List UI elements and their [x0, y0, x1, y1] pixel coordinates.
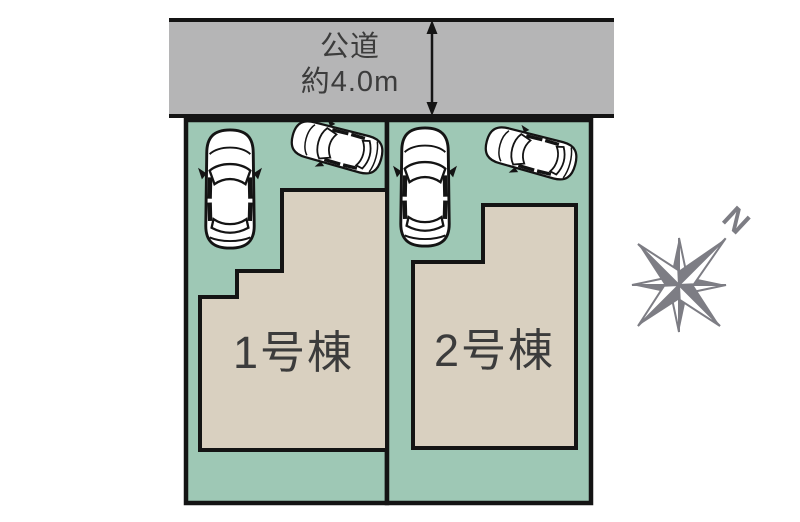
building-2-label: 2号棟	[413, 325, 576, 377]
road-label: 公道 約4.0m	[268, 30, 432, 100]
compass-rose-icon	[631, 231, 733, 333]
road-width-value: 約4.0m	[268, 65, 432, 100]
road-name: 公道	[268, 30, 432, 65]
car-icon	[198, 130, 262, 248]
car-icon	[393, 128, 457, 246]
road-bottom-edge	[169, 114, 614, 118]
site-plan: 公道 約4.0m 1号棟 2号棟 N	[0, 0, 800, 522]
road-top-edge	[169, 18, 614, 22]
building-1-label: 1号棟	[200, 327, 387, 379]
